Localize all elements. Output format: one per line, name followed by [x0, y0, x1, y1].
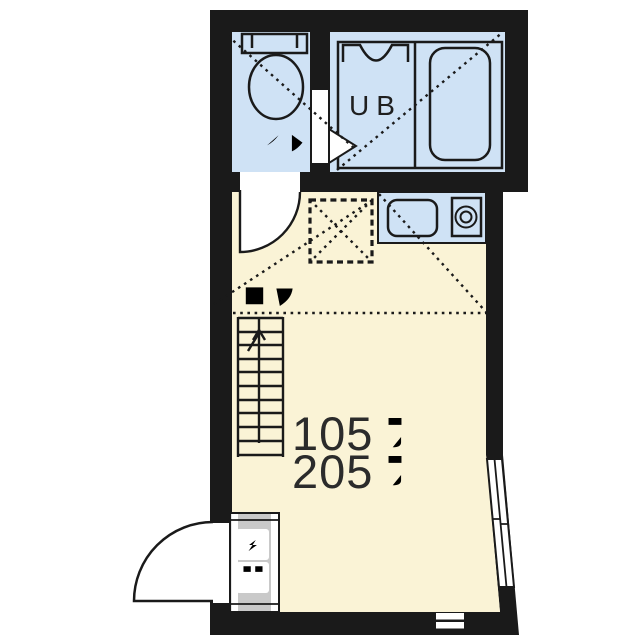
vent-slat-1 [436, 613, 464, 620]
kana-to-icon [300, 281, 329, 310]
floor-plan-canvas: UB 105 205 [0, 0, 640, 640]
wall-right-upper [486, 190, 503, 455]
kanji-gou-icon [376, 415, 414, 453]
entrance-label [236, 529, 269, 593]
floor-plan-drawing [0, 0, 640, 640]
entrance-label-tile [236, 562, 269, 593]
kanji-shitsu-icon [417, 453, 455, 491]
kana-fu-icon [270, 281, 299, 310]
toilet-bowl [249, 55, 303, 119]
loft-label [240, 281, 329, 310]
kanji-gou-icon [376, 453, 414, 491]
bath-door-opening [312, 90, 328, 163]
room-number-205-digits: 205 [292, 453, 373, 491]
kanji-shitsu-icon [417, 415, 455, 453]
kanji-kan-icon [239, 564, 267, 592]
kana-to-icon [239, 133, 262, 156]
room-door-opening [240, 172, 300, 192]
entrance-strip-right [271, 514, 278, 611]
entrance-label-tile [236, 529, 269, 560]
kana-ro-icon [240, 281, 269, 310]
room-number-205: 205 [292, 453, 455, 491]
kanji-gen-icon [239, 531, 267, 559]
toilet-label [239, 133, 308, 156]
unit-bath-label: UB [349, 90, 402, 122]
vent-slat-2 [436, 622, 464, 629]
kana-re-icon [285, 133, 308, 156]
room-number-labels: 105 205 [292, 415, 455, 491]
kana-i-icon [262, 133, 285, 156]
